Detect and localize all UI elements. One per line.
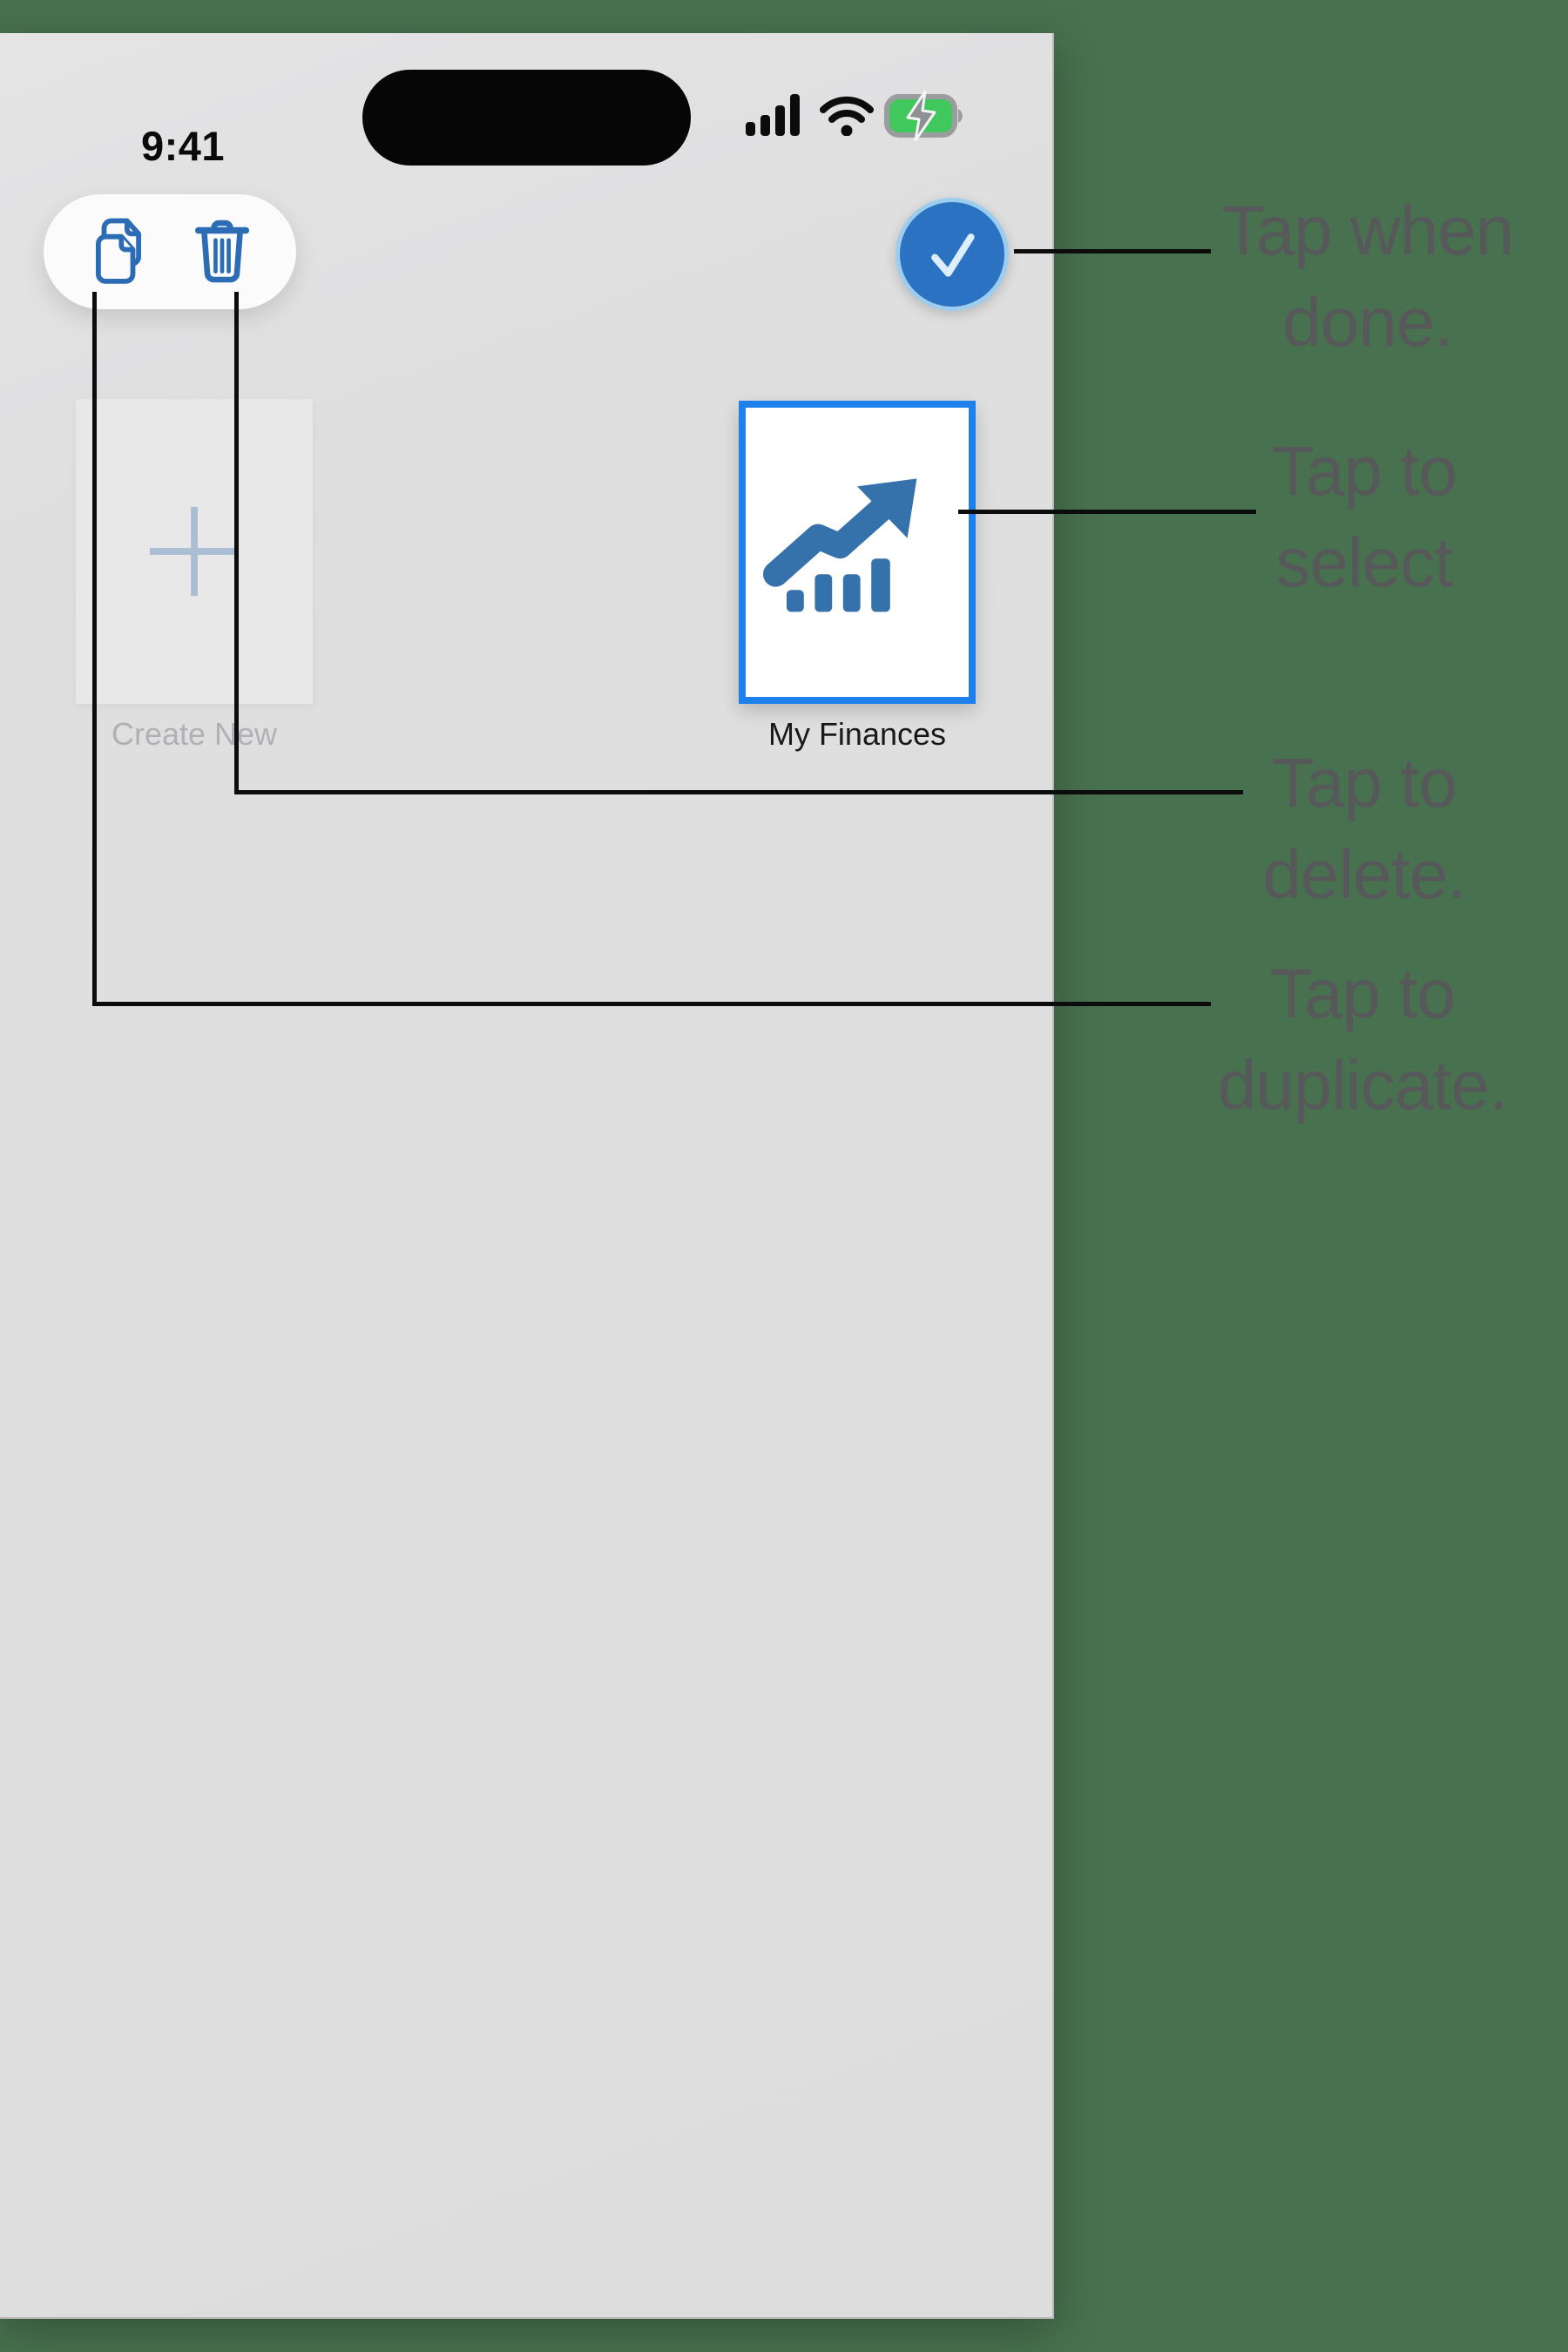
connector-duplicate-horizontal: [92, 1002, 1211, 1006]
annotation-tap-to-select: Tap to select: [1155, 425, 1568, 608]
my-finances-label: My Finances: [739, 716, 976, 753]
trash-icon: [194, 218, 250, 286]
wifi-icon: [819, 96, 875, 136]
connector-delete-vertical: [234, 292, 239, 794]
status-time: 9:41: [122, 122, 244, 170]
phone-screen: 9:41: [0, 33, 1054, 2319]
annotation-line: Tap to: [1155, 737, 1568, 828]
tutorial-page: 9:41: [0, 0, 1568, 2352]
dynamic-island: [362, 70, 691, 166]
done-button[interactable]: [896, 198, 1009, 311]
annotation-tap-when-done: Tap when done.: [1159, 185, 1568, 368]
annotation-line: Tap to: [1155, 425, 1568, 517]
annotation-tap-to-delete: Tap to delete.: [1155, 737, 1568, 920]
duplicate-pages-icon: [90, 214, 147, 289]
plus-icon: [148, 504, 240, 598]
annotation-line: duplicate.: [1153, 1039, 1568, 1131]
annotation-line: done.: [1159, 276, 1568, 368]
cellular-signal-icon: [746, 94, 803, 136]
create-new-card[interactable]: [76, 399, 313, 704]
battery-charging-icon: [883, 91, 965, 141]
create-new-label: Create New: [76, 716, 313, 753]
connector-delete-horizontal: [234, 790, 1243, 794]
annotation-line: Tap to: [1153, 948, 1568, 1039]
checkmark-icon: [913, 215, 991, 294]
delete-button[interactable]: [194, 218, 250, 286]
annotation-line: select: [1155, 517, 1568, 608]
trending-chart-icon: [763, 474, 951, 631]
connector-duplicate-vertical: [92, 292, 97, 1006]
annotation-tap-to-duplicate: Tap to duplicate.: [1153, 948, 1568, 1131]
annotation-line: Tap when: [1159, 185, 1568, 276]
my-finances-card[interactable]: [739, 401, 976, 704]
annotation-line: delete.: [1155, 828, 1568, 920]
edit-toolbar: [44, 194, 296, 309]
duplicate-button[interactable]: [90, 214, 147, 289]
